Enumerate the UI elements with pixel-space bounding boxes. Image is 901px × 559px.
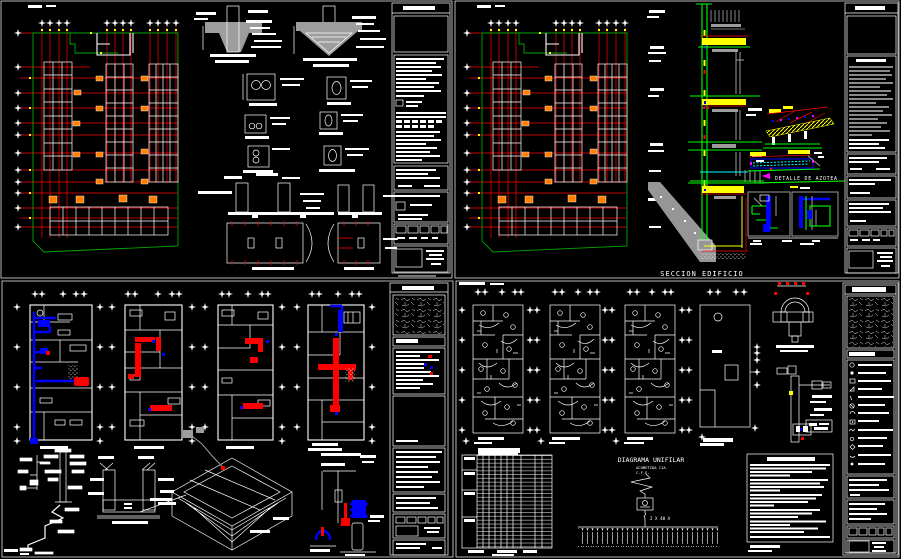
yellow-lamp-dot [789,391,793,395]
stippled-footing-sections [227,10,398,270]
branch-breakers-row [578,528,718,547]
roof-plan [700,305,755,446]
electrical-plan-1 [473,305,523,433]
main-breaker-label: 2 X 40 A [650,516,671,521]
sheet-building-section: DETALLE DE AZOTEA SECCION EDIFICIO [455,1,899,278]
plan-dimension-markers [458,288,761,445]
arch-detail [773,282,814,352]
foundation-wall-sections [198,173,397,218]
foundation-plan [14,5,180,252]
title-block [390,283,448,555]
roof-details: DETALLE DE AZOTEA [746,106,845,189]
foundation-plan-copy [463,5,629,252]
title-block [845,3,898,273]
column-sections [243,74,372,173]
footing-detail-a [194,6,282,63]
meter-box [637,498,653,510]
cfe-label: C.F.E. [636,470,650,475]
valve-details [310,453,384,556]
cad-multi-sheet-view: DETALLE DE AZOTEA SECCION EDIFICIO [0,0,901,559]
plumbing-plan-3 [218,305,273,440]
trench-detail [88,456,176,524]
sheet-foundation-plan [1,1,452,278]
unifilar-title: DIAGRAMA UNIFILAR [618,456,685,464]
electrical-plan-2 [550,305,600,433]
building-section-detail [647,4,764,262]
pipe-detail-boxes [748,192,838,245]
section-label: SECCION EDIFICIO [660,270,743,278]
plan-labels [40,443,342,451]
one-line-diagram: DIAGRAMA UNIFILAR ACOMETIDA CIA. C.F.E. … [578,456,718,547]
load-table [462,448,552,556]
electrical-plan-3 [625,305,675,433]
title-block [392,3,450,277]
notes-box [747,454,833,552]
magenta-arrow-icon [762,173,770,179]
plumbing-plan-1 [30,305,92,444]
cistern-isometric [140,427,292,550]
footing-detail-b [294,6,386,67]
plumbing-plan-4 [308,305,364,440]
service-mast-detail [777,366,832,442]
plumbing-plan-2 [125,305,182,440]
pipe-riser-details [18,449,86,554]
sheet-plumbing-plans [2,281,453,557]
title-block [843,283,898,555]
sheet-electrical-plans: DIAGRAMA UNIFILAR ACOMETIDA CIA. C.F.E. … [456,281,899,557]
service-drop-line [631,474,652,498]
